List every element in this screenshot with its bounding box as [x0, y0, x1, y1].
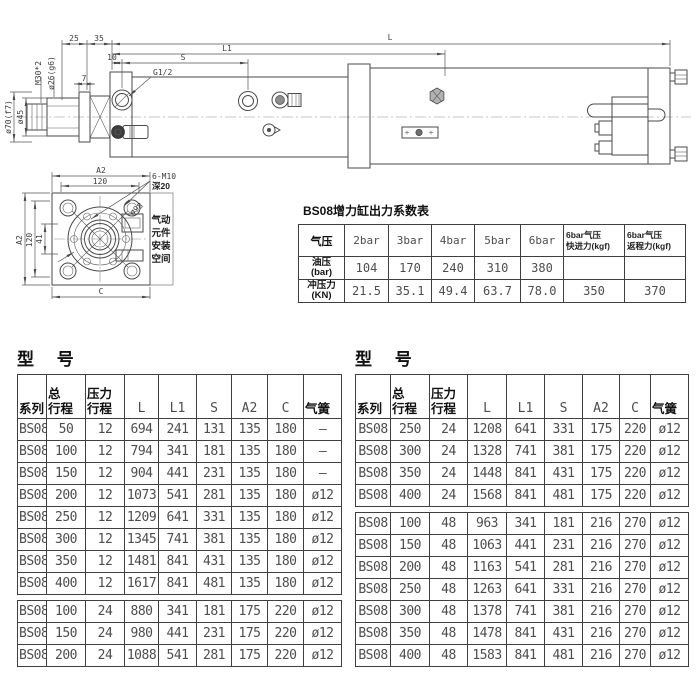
- cell: ø12: [304, 507, 342, 529]
- cell: 880: [125, 601, 159, 623]
- cell: 181: [545, 513, 583, 535]
- cell: 48: [430, 601, 468, 623]
- cell: 135: [232, 419, 268, 441]
- col-header: 3bar: [389, 225, 432, 257]
- dim-label: 35: [94, 34, 104, 43]
- dim-label: A2: [96, 166, 106, 175]
- cell: 331: [545, 579, 583, 601]
- cell: 381: [545, 601, 583, 623]
- col-header: S: [545, 375, 583, 419]
- table-row: BS0815024980441231175220ø12: [18, 623, 342, 645]
- cell: 24: [430, 419, 468, 441]
- cell: 441: [159, 463, 197, 485]
- cell: 21.5: [345, 280, 389, 303]
- cell: 220: [268, 623, 304, 645]
- cell: 270: [620, 535, 651, 557]
- mid-port: [239, 92, 258, 111]
- table-row: BS0815012904441231135180–: [18, 463, 342, 485]
- dim-label: L1: [222, 44, 232, 53]
- cell: 1328: [468, 441, 507, 463]
- cell: 400: [47, 573, 86, 595]
- cell: 281: [545, 557, 583, 579]
- coefficient-table-title: BS08增力缸出力系数表: [303, 202, 429, 219]
- cell: 400: [391, 645, 430, 667]
- model-header-row: 系列 总 行程 压力 行程 L L1 S A2 C 气簧: [356, 375, 689, 419]
- model-table-right: 系列 总 行程 压力 行程 L L1 S A2 C 气簧 BS082502412…: [355, 374, 689, 507]
- cell: 135: [232, 573, 268, 595]
- g12-port: [112, 90, 132, 110]
- cell: 281: [197, 485, 232, 507]
- cell: 231: [197, 463, 232, 485]
- cell: 841: [159, 573, 197, 595]
- cell: 310: [475, 257, 521, 280]
- cell: 24: [86, 645, 125, 667]
- table-row: BS08250481263641331216270ø12: [356, 579, 689, 601]
- cell: 131: [197, 419, 232, 441]
- col-header: 系列: [18, 375, 47, 419]
- col-header: A2: [232, 375, 268, 419]
- cell: 24: [430, 441, 468, 463]
- cell: 150: [391, 535, 430, 557]
- col-header: A2: [583, 375, 620, 419]
- dim-label: 120: [93, 177, 108, 186]
- table-row: BS08300241328741381175220ø12: [356, 441, 689, 463]
- cell: 150: [47, 463, 86, 485]
- sensor-plate: [402, 127, 438, 138]
- coefficient-table: 气压 2bar 3bar 4bar 5bar 6bar 6bar气压 快进力(k…: [298, 224, 686, 303]
- col-header: 气簧: [651, 375, 689, 419]
- front-flange: [110, 72, 132, 157]
- cell: 12: [86, 551, 125, 573]
- cell: 180: [268, 507, 304, 529]
- cell: 1073: [125, 485, 159, 507]
- cell: 240: [432, 257, 475, 280]
- port-label: G1/2: [153, 68, 172, 77]
- model-table-left-block2: BS0810024880341181175220ø12BS08150249804…: [17, 600, 342, 667]
- table-row: BS08350121481841431135180ø12: [18, 551, 342, 573]
- cell: BS08: [18, 551, 47, 573]
- col-header: S: [197, 375, 232, 419]
- cell: 1345: [125, 529, 159, 551]
- model-header-row: 系列 总 行程 压力 行程 L L1 S A2 C 气簧: [18, 375, 342, 419]
- cell: 741: [507, 441, 545, 463]
- cell: BS08: [18, 485, 47, 507]
- cell: 1617: [125, 573, 159, 595]
- cell: 1163: [468, 557, 507, 579]
- cell: 331: [545, 419, 583, 441]
- cell: 300: [391, 601, 430, 623]
- cell: 220: [620, 441, 651, 463]
- rear-bolt-top: [670, 70, 687, 84]
- table-row: BS08150481063441231216270ø12: [356, 535, 689, 557]
- col-header: 总 行程: [47, 375, 86, 419]
- cell: 1208: [468, 419, 507, 441]
- col-header: 系列: [356, 375, 391, 419]
- table-row: 冲压力 (KN)21.535.149.463.778.0350370: [299, 280, 686, 303]
- cell: 431: [545, 463, 583, 485]
- cell: 481: [197, 573, 232, 595]
- cell: 300: [47, 529, 86, 551]
- cell: 135: [232, 441, 268, 463]
- cell: 431: [545, 623, 583, 645]
- dim-label: ø45: [16, 110, 25, 125]
- cell: 963: [468, 513, 507, 535]
- rear-bolt-bottom: [670, 147, 687, 161]
- cell: 12: [86, 441, 125, 463]
- cell: 181: [197, 441, 232, 463]
- cell: ø12: [651, 513, 689, 535]
- cell: 冲压力 (KN): [299, 280, 345, 303]
- cell: 216: [583, 557, 620, 579]
- cell: 12: [86, 573, 125, 595]
- datasheet-page: 25 35 L L1 10 S G1/2 M30*2 ø26(g6) 7 ø70…: [0, 0, 696, 675]
- cell: ø12: [304, 623, 342, 645]
- table-row: BS0810048963341181216270ø12: [356, 513, 689, 535]
- col-header: C: [620, 375, 651, 419]
- cell: BS08: [356, 419, 391, 441]
- cell: ø12: [304, 601, 342, 623]
- col-header: L: [125, 375, 159, 419]
- dim-label: 7: [82, 74, 87, 83]
- cell: 341: [507, 513, 545, 535]
- cell: BS08: [356, 579, 391, 601]
- cell: 180: [268, 529, 304, 551]
- cell: 481: [545, 645, 583, 667]
- cell: ø12: [651, 601, 689, 623]
- cell: 270: [620, 623, 651, 645]
- cell: 216: [583, 513, 620, 535]
- install-space-label: 空间: [151, 253, 170, 265]
- cell: 油压 (bar): [299, 257, 345, 280]
- col-header: 总 行程: [391, 375, 430, 419]
- col-header: 6bar气压 快进力(kgf): [564, 225, 625, 257]
- col-header: L: [468, 375, 507, 419]
- cell: 181: [197, 601, 232, 623]
- cell: 1378: [468, 601, 507, 623]
- cell: BS08: [356, 601, 391, 623]
- col-header: L1: [159, 375, 197, 419]
- cell: 541: [159, 485, 197, 507]
- cell: BS08: [356, 557, 391, 579]
- cell: 350: [391, 623, 430, 645]
- coupling-ring: [348, 64, 370, 168]
- cell: 135: [232, 551, 268, 573]
- cell: 175: [232, 623, 268, 645]
- col-header: C: [268, 375, 304, 419]
- col-header: 压力 行程: [430, 375, 468, 419]
- cell: 231: [197, 623, 232, 645]
- cell: 216: [583, 535, 620, 557]
- cell: 24: [86, 601, 125, 623]
- dim-label: 120: [25, 233, 34, 248]
- cell: BS08: [18, 419, 47, 441]
- cell: 300: [391, 441, 430, 463]
- table-row: BS08200121073541281135180ø12: [18, 485, 342, 507]
- cell: ø12: [651, 579, 689, 601]
- cell: 48: [430, 513, 468, 535]
- cell: 841: [507, 463, 545, 485]
- cell: 12: [86, 463, 125, 485]
- table-row: BS08300121345741381135180ø12: [18, 529, 342, 551]
- cell: BS08: [18, 623, 47, 645]
- cell: 100: [47, 601, 86, 623]
- cell: 331: [197, 507, 232, 529]
- cell: –: [304, 441, 342, 463]
- rear-end-plate: [648, 68, 670, 164]
- cell: BS08: [356, 513, 391, 535]
- table-row: BS08200241088541281175220ø12: [18, 645, 342, 667]
- cell: 175: [583, 419, 620, 441]
- table-row: BS08250121209641331135180ø12: [18, 507, 342, 529]
- cell: 1583: [468, 645, 507, 667]
- cell: 12: [86, 507, 125, 529]
- cell: 270: [620, 601, 651, 623]
- cell: 270: [620, 557, 651, 579]
- dim-label: 41: [35, 234, 44, 244]
- cylinder-end-view: A2 120 6-M10 深20 ø98 A2 120 41 C 气动 元件 安…: [15, 166, 176, 299]
- cell: 220: [620, 485, 651, 507]
- cell: BS08: [18, 601, 47, 623]
- cell: ø12: [651, 557, 689, 579]
- table-row: BS085012694241131135180–: [18, 419, 342, 441]
- cell: 270: [620, 645, 651, 667]
- cell: 175: [583, 485, 620, 507]
- cell: 175: [583, 441, 620, 463]
- cell: ø12: [304, 573, 342, 595]
- cell: ø12: [651, 485, 689, 507]
- col-header: 压力 行程: [86, 375, 125, 419]
- table-row: BS0810024880341181175220ø12: [18, 601, 342, 623]
- dim-label: C: [99, 287, 104, 296]
- cell: 78.0: [521, 280, 564, 303]
- cell: 216: [583, 601, 620, 623]
- cell: 12: [86, 529, 125, 551]
- col-header: 气簧: [304, 375, 342, 419]
- cell: 381: [197, 529, 232, 551]
- cell: ø12: [651, 623, 689, 645]
- cell: 841: [159, 551, 197, 573]
- cell: 35.1: [389, 280, 432, 303]
- model-section-right: 型 号 系列 总 行程 压力 行程 L L1 S A2 C 气簧 BS: [355, 345, 688, 667]
- cell: 135: [232, 529, 268, 551]
- dim-label: A2: [15, 235, 24, 245]
- model-table-title: 型 号: [17, 345, 341, 374]
- cell: 180: [268, 485, 304, 507]
- dim-label: ø70(f7): [4, 100, 13, 134]
- cell: 441: [159, 623, 197, 645]
- coefficient-header-row: 气压 2bar 3bar 4bar 5bar 6bar 6bar气压 快进力(k…: [299, 225, 686, 257]
- col-header: L1: [507, 375, 545, 419]
- cell: 641: [507, 579, 545, 601]
- cell: ø12: [651, 441, 689, 463]
- cell: 431: [197, 551, 232, 573]
- table-row: BS08200481163541281216270ø12: [356, 557, 689, 579]
- pipe-loop: [588, 104, 648, 117]
- cell: 63.7: [475, 280, 521, 303]
- cell: 231: [545, 535, 583, 557]
- cell: 694: [125, 419, 159, 441]
- cell: ø12: [304, 551, 342, 573]
- cell: 220: [268, 645, 304, 667]
- cell: 370: [625, 280, 686, 303]
- cell: 1088: [125, 645, 159, 667]
- cell: BS08: [356, 441, 391, 463]
- ridged-plug: [272, 92, 301, 108]
- cell: 170: [389, 257, 432, 280]
- pipe-stub: [648, 109, 665, 121]
- table-row: BS08350481478841431216270ø12: [356, 623, 689, 645]
- cell: 24: [430, 463, 468, 485]
- cell: 281: [197, 645, 232, 667]
- cell: 250: [391, 579, 430, 601]
- cell: 241: [159, 419, 197, 441]
- cell: 48: [430, 645, 468, 667]
- cell: 250: [391, 419, 430, 441]
- cell: –: [304, 463, 342, 485]
- cell: 100: [47, 441, 86, 463]
- col-header: 2bar: [345, 225, 389, 257]
- install-space-label: 气动: [150, 214, 171, 226]
- cell: 1478: [468, 623, 507, 645]
- cell: 341: [159, 601, 197, 623]
- fitting-1: [595, 121, 612, 135]
- cell: 180: [268, 463, 304, 485]
- model-section-left: 型 号 系列 总 行程 压力 行程 L L1 S A2 C 气簧 BS: [17, 345, 341, 667]
- cell: 180: [268, 551, 304, 573]
- cell: 12: [86, 485, 125, 507]
- cell: 350: [564, 280, 625, 303]
- cell: 220: [620, 419, 651, 441]
- hex-plug: [430, 88, 444, 104]
- table-row: BS08350241448841431175220ø12: [356, 463, 689, 485]
- manifold-block: [612, 97, 648, 155]
- bottom-plug: [112, 126, 149, 139]
- cell: 135: [232, 507, 268, 529]
- cell: 48: [430, 557, 468, 579]
- cell: 381: [545, 441, 583, 463]
- cell: 350: [391, 463, 430, 485]
- cell: 175: [232, 645, 268, 667]
- install-space-label: 元件: [151, 227, 171, 239]
- cell: BS08: [356, 485, 391, 507]
- cell: 350: [47, 551, 86, 573]
- table-row: BS08300481378741381216270ø12: [356, 601, 689, 623]
- cell: ø12: [651, 535, 689, 557]
- cell: 220: [620, 463, 651, 485]
- booster-tube: [370, 68, 648, 164]
- table-row: BS0810012794341181135180–: [18, 441, 342, 463]
- cell: 841: [507, 623, 545, 645]
- cell: 150: [47, 623, 86, 645]
- table-row: BS08400121617841481135180ø12: [18, 573, 342, 595]
- cell: 48: [430, 535, 468, 557]
- dim-label: 25: [69, 34, 79, 43]
- dim-label: 10: [107, 53, 117, 62]
- install-space-box: [150, 193, 173, 285]
- cell: 24: [86, 623, 125, 645]
- cell: 541: [507, 557, 545, 579]
- cell: 12: [86, 419, 125, 441]
- cell: ø12: [304, 529, 342, 551]
- cell: 1209: [125, 507, 159, 529]
- cell: 180: [268, 573, 304, 595]
- cell: 175: [232, 601, 268, 623]
- table-row: BS08250241208641331175220ø12: [356, 419, 689, 441]
- cell: –: [304, 419, 342, 441]
- cell: 135: [232, 463, 268, 485]
- col-header: 6bar气压 返程力(kgf): [625, 225, 686, 257]
- dim-label: M30*2: [34, 61, 43, 85]
- cell: BS08: [18, 645, 47, 667]
- cell: 200: [47, 645, 86, 667]
- model-table-title: 型 号: [355, 345, 688, 374]
- cell: 48: [430, 623, 468, 645]
- cell: 380: [521, 257, 564, 280]
- cell: 841: [507, 485, 545, 507]
- cell: [564, 257, 625, 280]
- fitting-2: [595, 141, 612, 154]
- cell: BS08: [356, 623, 391, 645]
- cell: 441: [507, 535, 545, 557]
- cell: BS08: [18, 463, 47, 485]
- cylinder-side-view: 25 35 L L1 10 S G1/2 M30*2 ø26(g6) 7 ø70…: [4, 33, 691, 168]
- cell: BS08: [18, 507, 47, 529]
- cell: 481: [545, 485, 583, 507]
- col-header: 气压: [299, 225, 345, 257]
- cell: 216: [583, 579, 620, 601]
- model-table-right-block2: BS0810048963341181216270ø12BS08150481063…: [355, 512, 689, 667]
- model-table-left: 系列 总 行程 压力 行程 L L1 S A2 C 气簧 BS085012694…: [17, 374, 342, 595]
- cell: 1448: [468, 463, 507, 485]
- cell: 50: [47, 419, 86, 441]
- dim-label: 6-M10: [152, 172, 176, 181]
- cell: ø12: [304, 645, 342, 667]
- dim-label: L: [388, 33, 393, 42]
- table-row: BS08400481583841481216270ø12: [356, 645, 689, 667]
- cell: 841: [507, 645, 545, 667]
- cell: 24: [430, 485, 468, 507]
- cell: 175: [583, 463, 620, 485]
- cell: 220: [268, 601, 304, 623]
- dim-label: ø26(g6): [47, 56, 56, 90]
- cell: 200: [47, 485, 86, 507]
- cell: BS08: [18, 441, 47, 463]
- cell: 180: [268, 441, 304, 463]
- cell: [625, 257, 686, 280]
- cell: 1263: [468, 579, 507, 601]
- cell: 641: [159, 507, 197, 529]
- cell: 180: [268, 419, 304, 441]
- cell: BS08: [18, 529, 47, 551]
- cell: ø12: [304, 485, 342, 507]
- install-space-label: 安装: [151, 240, 171, 252]
- cell: ø12: [651, 419, 689, 441]
- cell: 135: [232, 485, 268, 507]
- cell: 794: [125, 441, 159, 463]
- cell: 1481: [125, 551, 159, 573]
- cell: 270: [620, 513, 651, 535]
- col-header: 6bar: [521, 225, 564, 257]
- table-row: 油压 (bar)104170240310380: [299, 257, 686, 280]
- cell: 904: [125, 463, 159, 485]
- cell: 400: [391, 485, 430, 507]
- cell: BS08: [356, 463, 391, 485]
- cell: 216: [583, 645, 620, 667]
- keyhole-fitting: [263, 124, 280, 136]
- dim-label: 深20: [152, 181, 170, 191]
- col-header: 4bar: [432, 225, 475, 257]
- cell: 270: [620, 579, 651, 601]
